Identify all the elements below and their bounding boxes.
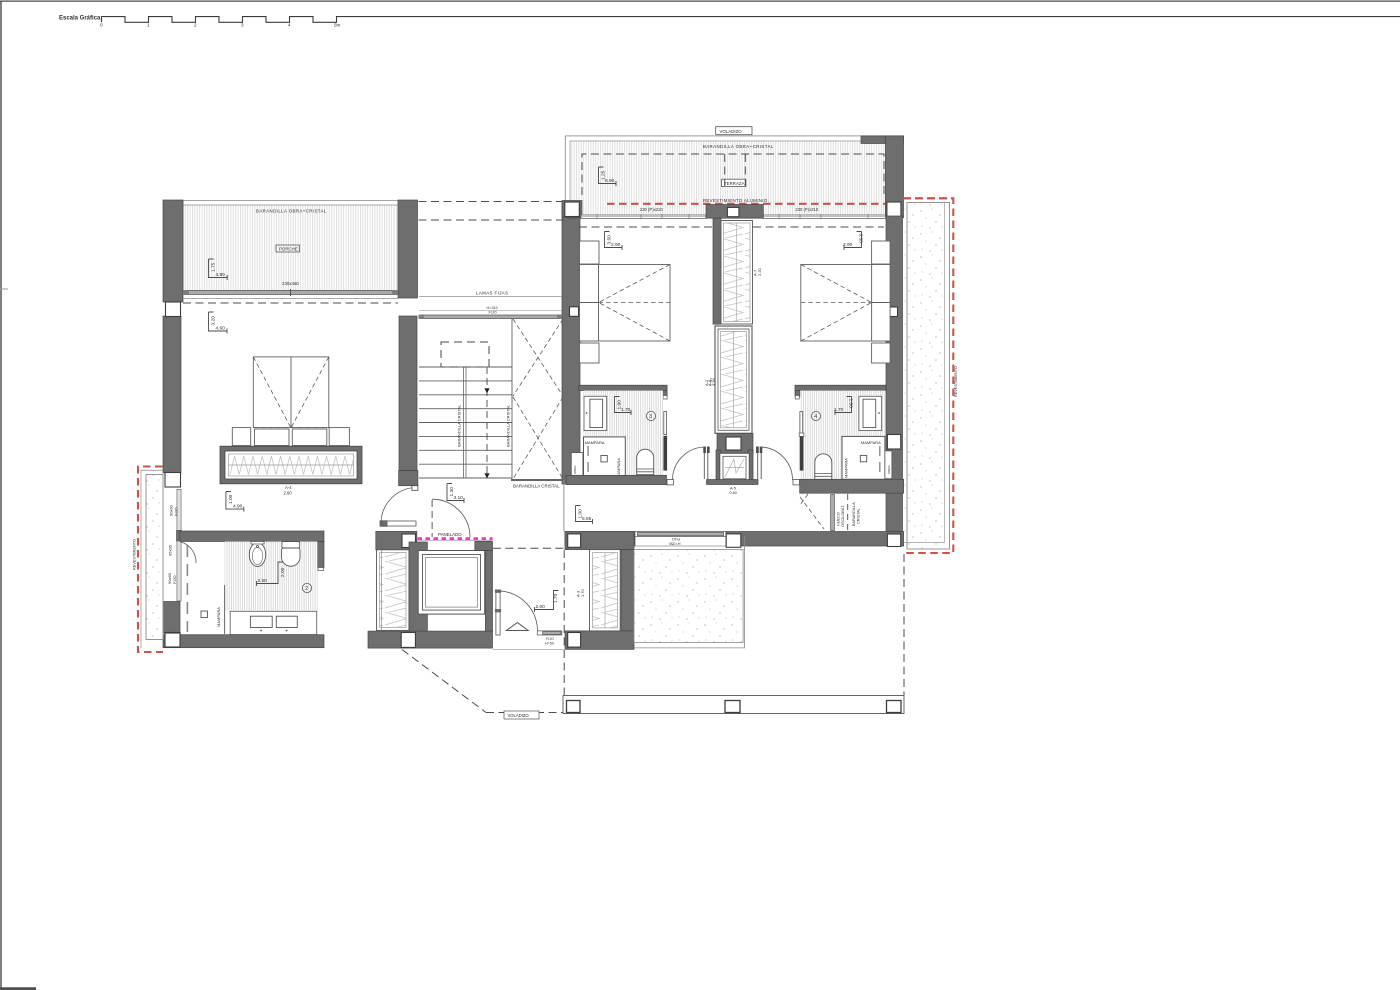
svg-text:FIJO: FIJO [174, 507, 179, 516]
svg-text:4.60: 4.60 [216, 326, 226, 332]
svg-text:Escala Gráfica: Escala Gráfica [59, 15, 101, 21]
svg-text:4: 4 [814, 414, 817, 420]
svg-text:HUECO: HUECO [837, 512, 841, 526]
svg-text:3: 3 [241, 23, 244, 28]
svg-text:MAMPARA: MAMPARA [216, 607, 221, 627]
svg-text:3.10: 3.10 [454, 495, 464, 501]
svg-text:FIJO: FIJO [546, 637, 554, 641]
svg-text:1.70: 1.70 [621, 407, 631, 413]
svg-text:2: 2 [305, 586, 308, 592]
svg-text:REVESTIMIENTO: REVESTIMIENTO [133, 539, 137, 570]
svg-text:OSCILOBAT.: OSCILOBAT. [841, 505, 845, 527]
svg-text:OBRA: OBRA [887, 465, 891, 474]
svg-text:230 (P)x210: 230 (P)x210 [795, 207, 818, 212]
svg-text:1: 1 [147, 23, 150, 28]
svg-text:95x95: 95x95 [168, 544, 173, 556]
svg-text:BARANDILLA CRISTAL: BARANDILLA CRISTAL [513, 484, 560, 489]
svg-text:4.80: 4.80 [216, 272, 226, 278]
svg-text:2.50: 2.50 [258, 578, 268, 584]
svg-text:A-4: A-4 [285, 485, 292, 490]
svg-text:2.60: 2.60 [284, 491, 293, 496]
svg-text:0: 0 [100, 23, 103, 28]
svg-text:2.90: 2.90 [611, 242, 621, 248]
svg-text:REVESTIMIENTO: REVESTIMIENTO [954, 366, 958, 397]
svg-text:4: 4 [288, 23, 291, 28]
svg-text:FIJO: FIJO [672, 537, 680, 541]
svg-text:2.00: 2.00 [280, 567, 286, 577]
svg-text:BARANDILLA: BARANDILLA [852, 502, 856, 526]
svg-text:230x460: 230x460 [282, 281, 299, 286]
svg-text:1.70: 1.70 [553, 593, 559, 603]
svg-text:VOLADIZO: VOLADIZO [720, 129, 743, 134]
svg-text:H=310: H=310 [487, 306, 498, 310]
svg-text:0.60: 0.60 [730, 491, 737, 495]
svg-text:H=350: H=350 [669, 541, 680, 545]
svg-text:3.20: 3.20 [211, 316, 217, 326]
svg-text:2.20: 2.20 [757, 267, 762, 276]
svg-text:LAMAS FIJAS: LAMAS FIJAS [476, 291, 508, 296]
svg-text:MAMPARA: MAMPARA [585, 440, 605, 445]
svg-text:1.70: 1.70 [834, 407, 844, 413]
svg-text:TERRAZA: TERRAZA [724, 181, 745, 186]
svg-text:2.90: 2.90 [843, 242, 853, 248]
svg-text:3.50: 3.50 [858, 234, 864, 244]
svg-text:BARANDILLA OBRA+CRISTAL: BARANDILLA OBRA+CRISTAL [703, 144, 774, 149]
svg-text:1.50: 1.50 [848, 399, 854, 409]
svg-text:BARANDILLA CRISTAL: BARANDILLA CRISTAL [457, 404, 462, 447]
svg-text:2: 2 [194, 23, 197, 28]
svg-text:1.70: 1.70 [580, 588, 585, 597]
svg-text:230 (P)x210: 230 (P)x210 [640, 207, 663, 212]
svg-text:5m: 5m [334, 23, 341, 28]
svg-text:4.90: 4.90 [233, 504, 243, 510]
svg-text:H=50: H=50 [545, 642, 554, 646]
svg-text:CRISTAL: CRISTAL [857, 508, 861, 524]
svg-text:3.20: 3.20 [712, 377, 717, 386]
svg-text:5.65: 5.65 [582, 516, 592, 522]
svg-text:PANELADO: PANELADO [438, 532, 462, 537]
svg-text:3: 3 [649, 414, 652, 420]
svg-text:BARANDILLA OBRA+CRISTAL: BARANDILLA OBRA+CRISTAL [256, 209, 327, 214]
svg-text:6.90: 6.90 [605, 178, 615, 184]
svg-text:FIJO: FIJO [172, 575, 177, 584]
svg-text:VOLADIZO: VOLADIZO [508, 713, 530, 718]
svg-text:PORCHE: PORCHE [279, 247, 298, 252]
svg-text:A-5: A-5 [730, 487, 736, 491]
svg-text:2.00: 2.00 [536, 604, 546, 610]
svg-text:REVESTIMIENTO ALUMINIO: REVESTIMIENTO ALUMINIO [703, 198, 768, 203]
svg-text:MAMPARA: MAMPARA [844, 458, 849, 478]
svg-text:1.75: 1.75 [211, 262, 217, 272]
svg-text:FIJO: FIJO [489, 311, 497, 315]
svg-text:OBRA: OBRA [573, 465, 577, 474]
svg-text:1.00: 1.00 [228, 494, 234, 504]
svg-text:BARANDILLA CRISTAL: BARANDILLA CRISTAL [506, 404, 511, 447]
svg-text:MAMPARA: MAMPARA [861, 440, 881, 445]
